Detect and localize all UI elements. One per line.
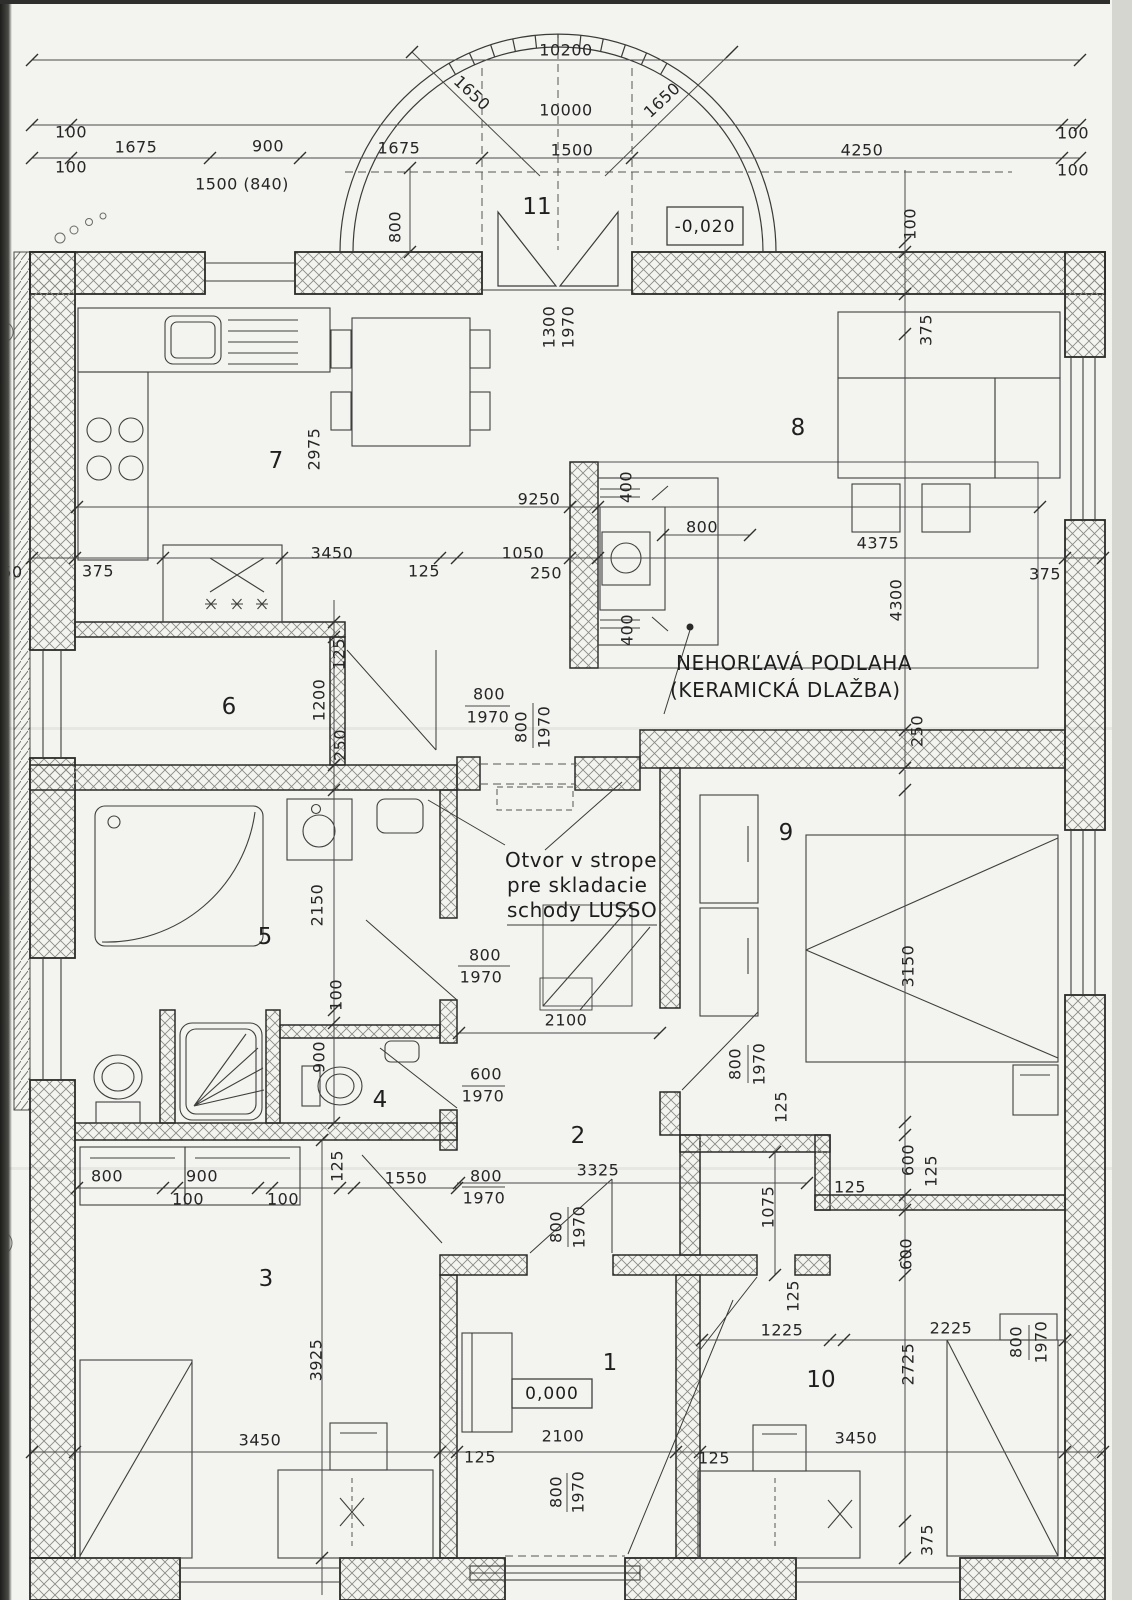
dimension-label: 100 <box>172 1190 204 1209</box>
level-marker-interior: 0,000 <box>525 1384 579 1404</box>
dimension-label: 250 <box>331 729 350 761</box>
dimension-label: 2975 <box>305 428 324 471</box>
dimension-label: 4250 <box>841 141 884 160</box>
floor-plan-canvas: 1 2 3 4 5 6 7 8 9 10 11 -0,020 0,000 NEH… <box>0 0 1132 1600</box>
dimension-label: 1550 <box>385 1169 428 1188</box>
room-label-5: 5 <box>258 924 273 950</box>
scan-edge-top <box>0 0 1110 4</box>
scan-edge-left <box>0 0 12 1600</box>
dimension-label: 3925 <box>307 1339 326 1382</box>
dimension-label: 125 <box>328 1150 347 1182</box>
scan-edge-right <box>1112 0 1132 1600</box>
room-label-3: 3 <box>259 1266 274 1292</box>
room-label-7: 7 <box>269 448 284 474</box>
dimension-label: 1675 <box>115 138 158 157</box>
dimension-label: 600 <box>470 1065 502 1084</box>
dimension-label: 125 <box>464 1448 496 1467</box>
dimension-label: 3450 <box>835 1429 878 1448</box>
dimension-label: 600 <box>899 1144 918 1176</box>
dimension-label: 2225 <box>930 1319 973 1338</box>
room-label-9: 9 <box>779 820 794 846</box>
dimension-label: 100 <box>55 123 87 142</box>
dimension-label: 2150 <box>308 884 327 927</box>
dimension-label: 1675 <box>378 139 421 158</box>
dimension-label: 375 <box>917 314 936 346</box>
dimension-label: 9250 <box>518 490 561 509</box>
dimension-label: 1970 <box>750 1043 769 1086</box>
floor-note-line1: NEHORĽAVÁ PODLAHA <box>676 651 912 675</box>
dimension-label: 2725 <box>899 1343 918 1386</box>
dimension-label: 600 <box>897 1238 916 1270</box>
dimension-label: 125 <box>698 1449 730 1468</box>
dimension-label: 1970 <box>463 1189 506 1208</box>
dimension-label: 2100 <box>545 1011 588 1030</box>
dimension-label: 3150 <box>899 945 918 988</box>
dimension-label: 125 <box>330 638 349 670</box>
dimension-label: 800 <box>473 685 505 704</box>
dimension-label: 1200 <box>310 679 329 722</box>
dimension-label: 900 <box>252 137 284 156</box>
ceiling-note-line2: pre skladacie <box>507 873 648 897</box>
dimension-label: 900 <box>310 1041 329 1073</box>
dimension-label: 3450 <box>311 544 354 563</box>
plan-linework <box>0 0 1132 1600</box>
dimension-label: 375 <box>918 1524 937 1556</box>
dimension-label: 125 <box>772 1091 791 1123</box>
dimension-label: 3450 <box>239 1431 282 1450</box>
dimension-label: 100 <box>327 979 346 1011</box>
dimension-label: 1225 <box>761 1321 804 1340</box>
dimension-label: 1300 <box>540 306 559 349</box>
dimension-label: 250 <box>530 564 562 583</box>
dimension-label: 2100 <box>542 1427 585 1446</box>
dimension-label: 1970 <box>467 708 510 727</box>
dimension-label: 100 <box>1057 124 1089 143</box>
dimension-label: 125 <box>922 1155 941 1187</box>
dimension-label: 1970 <box>570 1206 589 1249</box>
dimension-label: 800 <box>726 1048 745 1080</box>
dimension-label: 4375 <box>857 534 900 553</box>
dimension-label: 800 <box>1007 1326 1026 1358</box>
dimension-label: 1050 <box>502 544 545 563</box>
dimension-label: 1500 <box>551 141 594 160</box>
ceiling-note-line3: schody LUSSO <box>507 898 657 922</box>
dimension-label: 1970 <box>559 306 578 349</box>
paper-crease <box>0 1167 1132 1170</box>
dimension-label: 10200 <box>539 41 592 60</box>
dimension-label: 800 <box>547 1211 566 1243</box>
floor-note-line2: (KERAMICKÁ DLAŽBA) <box>670 678 901 702</box>
dimension-label: 375 <box>82 562 114 581</box>
dimension-label: 1970 <box>460 968 503 987</box>
dimension-label: 1970 <box>1032 1321 1051 1364</box>
dimension-label: 1500 (840) <box>195 175 289 194</box>
dimension-label: 800 <box>386 211 405 243</box>
dimension-label: 10000 <box>539 101 592 120</box>
room-label-2: 2 <box>571 1123 586 1149</box>
dimension-label: 800 <box>547 1476 566 1508</box>
room-label-10: 10 <box>806 1367 835 1393</box>
level-marker-terrace: -0,020 <box>675 217 736 237</box>
dimension-label: 800 <box>686 518 718 537</box>
paper-crease <box>0 727 1132 730</box>
dimension-label: 800 <box>469 946 501 965</box>
dimension-label: 100 <box>1057 161 1089 180</box>
room-label-1: 1 <box>603 1350 618 1376</box>
dimension-label: 4300 <box>887 579 906 622</box>
dimension-label: 3325 <box>577 1161 620 1180</box>
dimension-label: 1075 <box>759 1186 778 1229</box>
dimension-label: 100 <box>901 208 920 240</box>
room-label-4: 4 <box>373 1087 388 1113</box>
dimension-label: 400 <box>617 471 636 503</box>
ceiling-note-line1: Otvor v strope <box>505 848 657 872</box>
insulation-strip <box>14 252 30 1110</box>
dimension-label: 125 <box>834 1178 866 1197</box>
dimension-label: 100 <box>55 158 87 177</box>
dimension-label: 100 <box>267 1190 299 1209</box>
room-label-8: 8 <box>791 415 806 441</box>
dimension-label: 125 <box>784 1280 803 1312</box>
room-label-11: 11 <box>522 194 551 220</box>
room-label-6: 6 <box>222 694 237 720</box>
dimension-label: 375 <box>1029 565 1061 584</box>
dimension-label: 250 <box>908 715 927 747</box>
dimension-label: 125 <box>408 562 440 581</box>
dimension-label: 1970 <box>462 1087 505 1106</box>
dimension-label: 1970 <box>569 1471 588 1514</box>
dimension-label: 400 <box>618 614 637 646</box>
